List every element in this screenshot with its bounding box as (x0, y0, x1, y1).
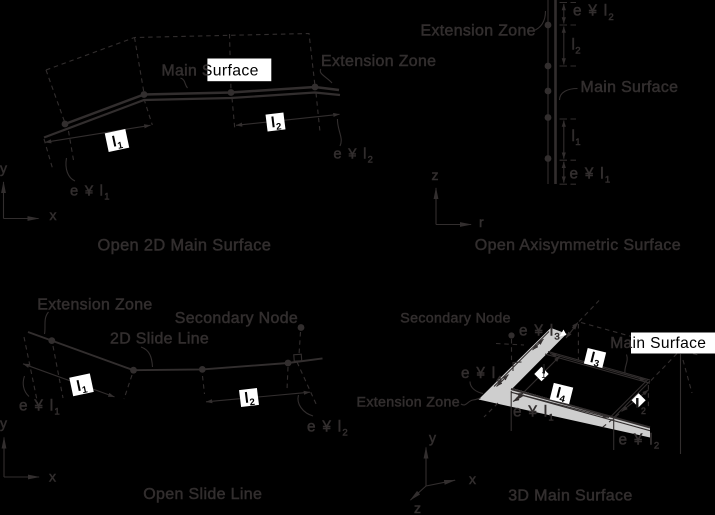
svg-text:Extension Zone: Extension Zone (37, 297, 152, 314)
svg-text:Main Surface: Main Surface (581, 79, 679, 96)
svg-text:1: 1 (541, 370, 546, 380)
svg-text:Extension Zone: Extension Zone (421, 23, 536, 40)
svg-text:Secondary Node: Secondary Node (175, 310, 298, 327)
svg-text:Open Axisymmetric Surface: Open Axisymmetric Surface (475, 237, 681, 254)
svg-text:Secondary Node: Secondary Node (400, 310, 511, 326)
svg-text:3D Main Surface: 3D Main Surface (508, 488, 632, 505)
svg-text:y: y (0, 160, 7, 176)
svg-text:Extension Zone: Extension Zone (357, 395, 461, 411)
svg-text:Open Slide Line: Open Slide Line (143, 486, 262, 503)
svg-text:z: z (432, 167, 439, 183)
svg-text:2D Slide Line: 2D Slide Line (110, 331, 209, 348)
svg-text:x: x (49, 469, 56, 485)
svg-text:2: 2 (641, 406, 646, 416)
svg-text:Open 2D Main Surface: Open 2D Main Surface (98, 237, 272, 255)
svg-text:y: y (429, 430, 436, 446)
svg-text:z: z (414, 500, 421, 515)
svg-text:x: x (50, 207, 57, 223)
svg-text:x: x (469, 471, 476, 487)
svg-text:r: r (479, 214, 484, 230)
svg-text:y: y (0, 415, 7, 431)
svg-text:Extension Zone: Extension Zone (321, 53, 436, 70)
